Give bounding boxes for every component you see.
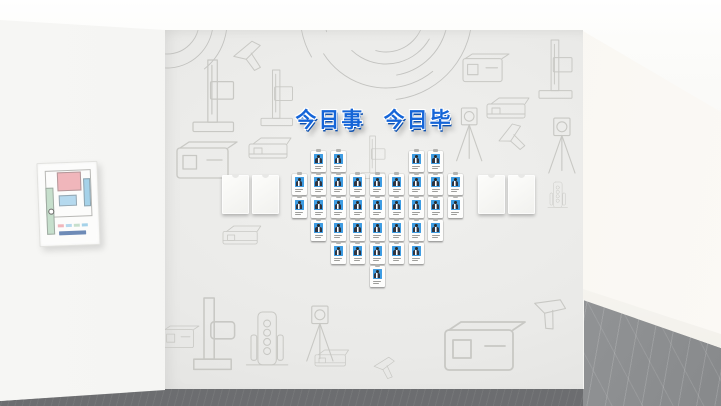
badge-card xyxy=(331,151,346,172)
badge-text-line xyxy=(432,237,438,238)
portrait-suit xyxy=(413,181,420,186)
badge-card xyxy=(409,197,424,218)
badge-photo xyxy=(412,154,421,164)
badge-card xyxy=(370,174,385,195)
badge-photo xyxy=(373,177,382,187)
badge-photo xyxy=(334,200,343,210)
portrait-suit xyxy=(354,181,361,186)
badge-card xyxy=(448,197,463,218)
portrait-suit xyxy=(432,181,439,186)
badge-clip xyxy=(375,264,380,267)
badge-card xyxy=(311,174,326,195)
showroom-scene: 今日事 今日毕 xyxy=(0,0,721,406)
badge-photo xyxy=(334,154,343,164)
portrait-suit xyxy=(374,204,381,209)
wall-slogan: 今日事 今日毕 xyxy=(165,104,583,134)
badge-photo xyxy=(412,200,421,210)
badge-text-line xyxy=(393,260,399,261)
badge-text-line xyxy=(354,212,362,213)
portrait-suit xyxy=(393,181,400,186)
badge-photo xyxy=(431,223,440,233)
badge-text-line xyxy=(412,191,418,192)
badge-photo xyxy=(334,177,343,187)
panel-thumb-notch xyxy=(262,174,269,178)
badge-text-line xyxy=(373,283,379,284)
badge-clip xyxy=(375,218,380,221)
badge-card xyxy=(389,243,404,264)
badge-photo xyxy=(412,246,421,256)
badge-photo xyxy=(373,269,382,279)
badge-clip xyxy=(336,241,341,244)
badge-clip xyxy=(297,172,302,175)
floor-plan-paper xyxy=(41,165,97,243)
badge-photo xyxy=(431,154,440,164)
badge-photo xyxy=(412,223,421,233)
badge-photo xyxy=(392,246,401,256)
badge-card xyxy=(350,174,365,195)
blank-pocket-panel xyxy=(252,175,279,214)
badge-photo xyxy=(334,246,343,256)
panel-thumb-notch xyxy=(518,174,525,178)
badge-text-line xyxy=(373,260,379,261)
badge-card xyxy=(311,197,326,218)
badge-text-line xyxy=(334,258,342,259)
portrait-suit xyxy=(413,204,420,209)
badge-text-line xyxy=(334,191,340,192)
badge-text-line xyxy=(334,212,342,213)
badge-text-line xyxy=(412,235,420,236)
badge-photo xyxy=(392,200,401,210)
badge-text-line xyxy=(334,166,342,167)
badge-card xyxy=(331,243,346,264)
blank-pocket-panel xyxy=(222,175,249,214)
badge-text-line xyxy=(334,237,340,238)
portrait-suit xyxy=(315,181,322,186)
badge-photo xyxy=(295,177,304,187)
portrait-suit xyxy=(296,181,303,186)
badge-text-line xyxy=(432,166,440,167)
portrait-suit xyxy=(413,227,420,232)
badge-clip xyxy=(394,218,399,221)
badge-text-line xyxy=(315,189,323,190)
badge-card xyxy=(331,220,346,241)
badge-photo xyxy=(353,177,362,187)
badge-photo xyxy=(451,177,460,187)
badge-card xyxy=(370,197,385,218)
badge-text-line xyxy=(432,212,440,213)
badge-clip xyxy=(316,172,321,175)
portrait-suit xyxy=(296,204,303,209)
badge-clip xyxy=(336,149,341,152)
badge-card xyxy=(409,174,424,195)
plan-legend xyxy=(58,223,88,227)
badge-text-line xyxy=(295,212,303,213)
badge-clip xyxy=(414,195,419,198)
badge-photo xyxy=(451,200,460,210)
badge-text-line xyxy=(295,191,301,192)
badge-clip xyxy=(375,172,380,175)
badge-clip xyxy=(414,172,419,175)
badge-card xyxy=(389,197,404,218)
badge-text-line xyxy=(354,191,360,192)
badge-clip xyxy=(453,195,458,198)
badge-clip xyxy=(316,195,321,198)
plan-caption-text xyxy=(59,230,87,236)
badge-text-line xyxy=(393,237,399,238)
badge-clip xyxy=(414,241,419,244)
badge-text-line xyxy=(315,214,321,215)
badge-text-line xyxy=(432,189,440,190)
badge-text-line xyxy=(295,214,301,215)
badge-card xyxy=(350,197,365,218)
badge-clip xyxy=(414,218,419,221)
badge-text-line xyxy=(393,191,399,192)
legend-swatch-blue xyxy=(66,224,72,227)
portrait-suit xyxy=(393,204,400,209)
portrait-suit xyxy=(335,181,342,186)
badge-clip xyxy=(433,218,438,221)
portrait-suit xyxy=(452,181,459,186)
badge-text-line xyxy=(354,235,362,236)
portrait-suit xyxy=(354,250,361,255)
badge-card xyxy=(409,243,424,264)
badge-text-line xyxy=(393,189,401,190)
badge-clip xyxy=(375,195,380,198)
portrait-suit xyxy=(432,204,439,209)
badge-card xyxy=(350,243,365,264)
badge-text-line xyxy=(354,258,362,259)
badge-text-line xyxy=(393,258,401,259)
badge-text-line xyxy=(334,235,342,236)
badge-text-line xyxy=(315,212,323,213)
badge-card xyxy=(370,220,385,241)
portrait-suit xyxy=(335,227,342,232)
badge-card xyxy=(292,197,307,218)
badge-photo xyxy=(431,200,440,210)
badge-text-line xyxy=(412,214,418,215)
badge-card xyxy=(409,220,424,241)
badge-text-line xyxy=(334,189,342,190)
badge-text-line xyxy=(373,258,381,259)
badge-text-line xyxy=(412,166,420,167)
badge-card xyxy=(409,151,424,172)
plan-zone-blue-center xyxy=(59,195,77,207)
badge-text-line xyxy=(315,191,321,192)
badge-text-line xyxy=(393,235,401,236)
feature-wall: 今日事 今日毕 xyxy=(165,30,583,389)
portrait-suit xyxy=(335,158,342,163)
portrait-suit xyxy=(335,204,342,209)
badge-text-line xyxy=(451,212,459,213)
badge-photo xyxy=(314,223,323,233)
badge-clip xyxy=(297,195,302,198)
badge-card xyxy=(428,151,443,172)
badge-clip xyxy=(414,149,419,152)
portrait-suit xyxy=(374,181,381,186)
badge-photo xyxy=(431,177,440,187)
badge-photo xyxy=(353,223,362,233)
badge-text-line xyxy=(451,189,459,190)
badge-card xyxy=(331,174,346,195)
portrait-suit xyxy=(413,158,420,163)
badge-clip xyxy=(394,172,399,175)
badge-clip xyxy=(375,241,380,244)
badge-text-line xyxy=(451,214,457,215)
portrait-suit xyxy=(374,273,381,278)
blank-pocket-panel xyxy=(478,175,505,214)
portrait-suit xyxy=(335,250,342,255)
badge-clip xyxy=(433,195,438,198)
badge-text-line xyxy=(412,258,420,259)
badge-text-line xyxy=(315,168,321,169)
blank-pocket-panel xyxy=(508,175,535,214)
badge-clip xyxy=(433,149,438,152)
badge-clip xyxy=(394,241,399,244)
badge-card xyxy=(350,220,365,241)
badge-text-line xyxy=(373,235,381,236)
badge-clip xyxy=(336,218,341,221)
badge-text-line xyxy=(295,189,303,190)
badge-text-line xyxy=(432,168,438,169)
badge-photo xyxy=(373,246,382,256)
badge-card xyxy=(448,174,463,195)
portrait-suit xyxy=(393,250,400,255)
badge-card xyxy=(311,151,326,172)
legend-swatch-green xyxy=(74,223,80,226)
portrait-suit xyxy=(315,204,322,209)
badge-text-line xyxy=(373,214,379,215)
panel-thumb-notch xyxy=(488,174,495,178)
floor-plan-poster xyxy=(36,161,100,247)
portrait-suit xyxy=(452,204,459,209)
badge-clip xyxy=(355,195,360,198)
badge-photo xyxy=(295,200,304,210)
badge-text-line xyxy=(373,281,381,282)
badge-text-line xyxy=(354,214,360,215)
badge-text-line xyxy=(334,260,340,261)
badge-photo xyxy=(353,200,362,210)
badge-clip xyxy=(433,172,438,175)
badge-text-line xyxy=(412,189,420,190)
badge-clip xyxy=(336,172,341,175)
badge-card xyxy=(292,174,307,195)
badge-clip xyxy=(355,218,360,221)
portrait-suit xyxy=(432,227,439,232)
badge-card xyxy=(389,220,404,241)
badge-text-line xyxy=(354,237,360,238)
badge-text-line xyxy=(373,189,381,190)
badge-text-line xyxy=(315,237,321,238)
panel-thumb-notch xyxy=(232,174,239,178)
badge-text-line xyxy=(432,214,438,215)
badge-card xyxy=(311,220,326,241)
badge-photo xyxy=(314,177,323,187)
badge-text-line xyxy=(432,235,440,236)
badge-card xyxy=(428,174,443,195)
legend-swatch-pink xyxy=(58,224,64,227)
portrait-suit xyxy=(374,227,381,232)
badge-photo xyxy=(353,246,362,256)
portrait-suit xyxy=(354,204,361,209)
badge-text-line xyxy=(354,189,362,190)
badge-text-line xyxy=(393,214,399,215)
badge-card xyxy=(389,174,404,195)
badge-text-line xyxy=(432,191,438,192)
plan-zone-blue-side xyxy=(83,178,90,206)
portrait-suit xyxy=(393,227,400,232)
badge-clip xyxy=(453,172,458,175)
badge-text-line xyxy=(315,166,323,167)
badge-text-line xyxy=(315,235,323,236)
badge-card xyxy=(428,197,443,218)
badge-text-line xyxy=(412,212,420,213)
badge-text-line xyxy=(412,260,418,261)
plan-marker-icon xyxy=(48,208,54,214)
portrait-suit xyxy=(432,158,439,163)
badge-card xyxy=(428,220,443,241)
portrait-suit xyxy=(374,250,381,255)
badge-clip xyxy=(355,172,360,175)
badge-clip xyxy=(316,149,321,152)
badge-text-line xyxy=(451,191,457,192)
badge-photo xyxy=(392,223,401,233)
badge-clip xyxy=(355,241,360,244)
badge-clip xyxy=(336,195,341,198)
badge-text-line xyxy=(373,191,379,192)
badge-text-line xyxy=(334,214,340,215)
badge-card xyxy=(331,197,346,218)
badge-clip xyxy=(394,195,399,198)
badge-photo xyxy=(373,200,382,210)
portrait-suit xyxy=(315,158,322,163)
badge-text-line xyxy=(373,212,381,213)
badge-clip xyxy=(316,218,321,221)
legend-swatch-side xyxy=(82,223,88,226)
badge-photo xyxy=(392,177,401,187)
badge-photo xyxy=(314,200,323,210)
portrait-suit xyxy=(354,227,361,232)
badge-text-line xyxy=(412,237,418,238)
portrait-suit xyxy=(315,227,322,232)
badge-card xyxy=(370,243,385,264)
badge-text-line xyxy=(354,260,360,261)
badge-photo xyxy=(412,177,421,187)
badge-text-line xyxy=(373,237,379,238)
badge-photo xyxy=(334,223,343,233)
plan-zone-pink xyxy=(57,172,82,192)
badge-photo xyxy=(373,223,382,233)
badge-photo xyxy=(314,154,323,164)
badge-text-line xyxy=(393,212,401,213)
badge-card xyxy=(370,266,385,287)
badge-text-line xyxy=(334,168,340,169)
portrait-suit xyxy=(413,250,420,255)
badge-text-line xyxy=(412,168,418,169)
